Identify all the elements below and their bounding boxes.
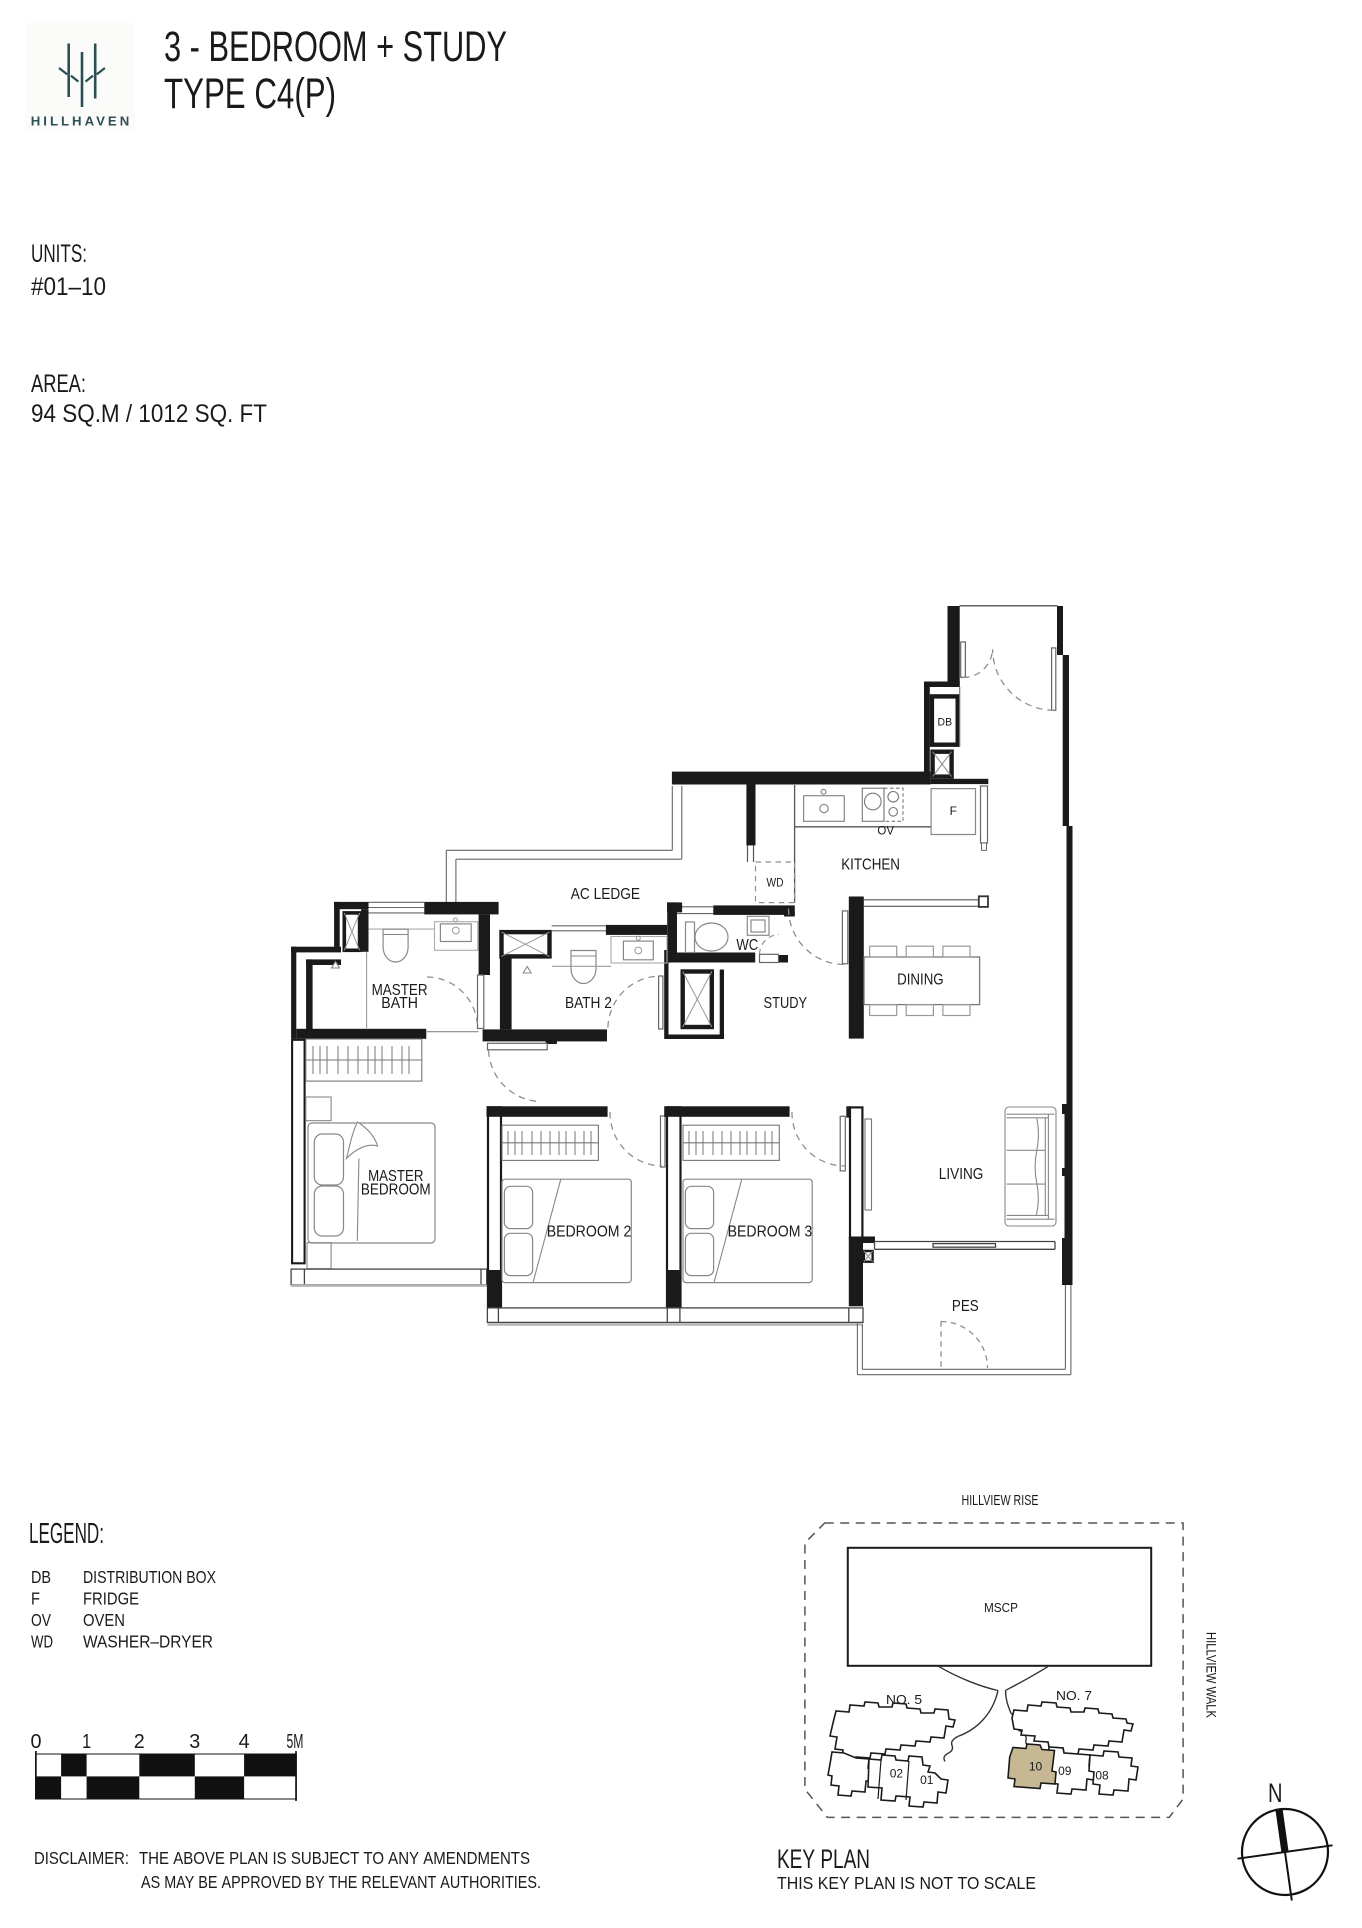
svg-text:PES: PES	[952, 1298, 979, 1315]
svg-text:DISCLAIMER:: DISCLAIMER:	[34, 1848, 129, 1868]
svg-text:KEY PLAN: KEY PLAN	[777, 1844, 870, 1874]
svg-text:AS MAY BE APPROVED BY THE RELE: AS MAY BE APPROVED BY THE RELEVANT AUTHO…	[141, 1872, 541, 1892]
svg-text:DB: DB	[938, 716, 953, 728]
svg-text:WD: WD	[31, 1632, 53, 1652]
svg-text:MSCP: MSCP	[984, 1601, 1018, 1615]
svg-text:AREA:: AREA:	[31, 370, 86, 398]
svg-text:OV: OV	[877, 823, 894, 837]
svg-text:F: F	[950, 804, 957, 818]
svg-text:01: 01	[920, 1773, 934, 1787]
svg-text:N: N	[1268, 1778, 1283, 1808]
svg-text:BEDROOM: BEDROOM	[361, 1182, 431, 1199]
svg-text:LEGEND:: LEGEND:	[29, 1518, 104, 1550]
svg-text:5M: 5M	[287, 1731, 304, 1753]
svg-text:09: 09	[1058, 1764, 1072, 1778]
svg-text:WC: WC	[736, 937, 758, 954]
svg-text:HILLVIEW WALK: HILLVIEW WALK	[1204, 1632, 1220, 1719]
svg-text:NO. 7: NO. 7	[1056, 1689, 1092, 1703]
svg-text:THIS KEY PLAN IS NOT TO SCALE: THIS KEY PLAN IS NOT TO SCALE	[777, 1873, 1036, 1893]
svg-text:F: F	[31, 1589, 40, 1609]
svg-text:THE ABOVE PLAN IS SUBJECT TO A: THE ABOVE PLAN IS SUBJECT TO ANY AMENDME…	[139, 1848, 530, 1868]
svg-text:BEDROOM 2: BEDROOM 2	[547, 1224, 632, 1241]
svg-text:#01–10: #01–10	[31, 273, 106, 301]
svg-text:OVEN: OVEN	[83, 1610, 125, 1630]
svg-text:HILLHAVEN: HILLHAVEN	[31, 114, 132, 129]
svg-text:LIVING: LIVING	[939, 1166, 984, 1183]
svg-text:WASHER–DRYER: WASHER–DRYER	[83, 1632, 213, 1652]
svg-text:STUDY: STUDY	[764, 995, 808, 1012]
svg-text:DISTRIBUTION BOX: DISTRIBUTION BOX	[83, 1567, 216, 1587]
svg-text:DINING: DINING	[897, 971, 944, 988]
svg-text:OV: OV	[31, 1610, 51, 1630]
svg-text:02: 02	[890, 1767, 904, 1781]
svg-text:DB: DB	[31, 1567, 51, 1587]
svg-text:2: 2	[134, 1731, 145, 1753]
svg-text:3: 3	[189, 1731, 200, 1753]
svg-text:HILLVIEW RISE: HILLVIEW RISE	[962, 1492, 1039, 1509]
svg-text:KITCHEN: KITCHEN	[841, 856, 900, 873]
svg-text:4: 4	[239, 1731, 250, 1753]
svg-text:0: 0	[31, 1731, 42, 1753]
svg-text:TYPE C4(P): TYPE C4(P)	[164, 70, 336, 118]
svg-text:BATH 2: BATH 2	[565, 995, 612, 1012]
svg-text:94 SQ.M / 1012 SQ. FT: 94 SQ.M / 1012 SQ. FT	[31, 400, 267, 428]
svg-text:WD: WD	[767, 878, 784, 890]
svg-text:BATH: BATH	[381, 995, 418, 1012]
svg-text:UNITS:: UNITS:	[31, 240, 87, 268]
svg-text:08: 08	[1095, 1769, 1109, 1783]
svg-text:10: 10	[1029, 1760, 1043, 1774]
svg-text:3 - BEDROOM + STUDY: 3 - BEDROOM + STUDY	[164, 23, 507, 71]
svg-text:AC LEDGE: AC LEDGE	[571, 886, 640, 903]
svg-text:1: 1	[82, 1731, 91, 1753]
svg-text:BEDROOM 3: BEDROOM 3	[728, 1224, 813, 1241]
svg-text:FRIDGE: FRIDGE	[83, 1589, 139, 1609]
